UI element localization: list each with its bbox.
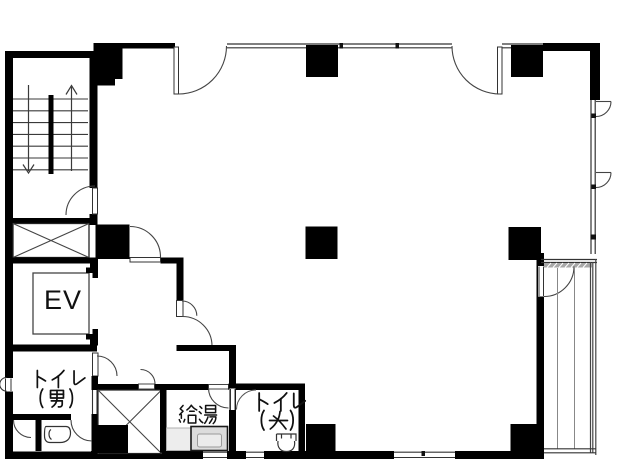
svg-text:EV: EV bbox=[44, 285, 82, 315]
